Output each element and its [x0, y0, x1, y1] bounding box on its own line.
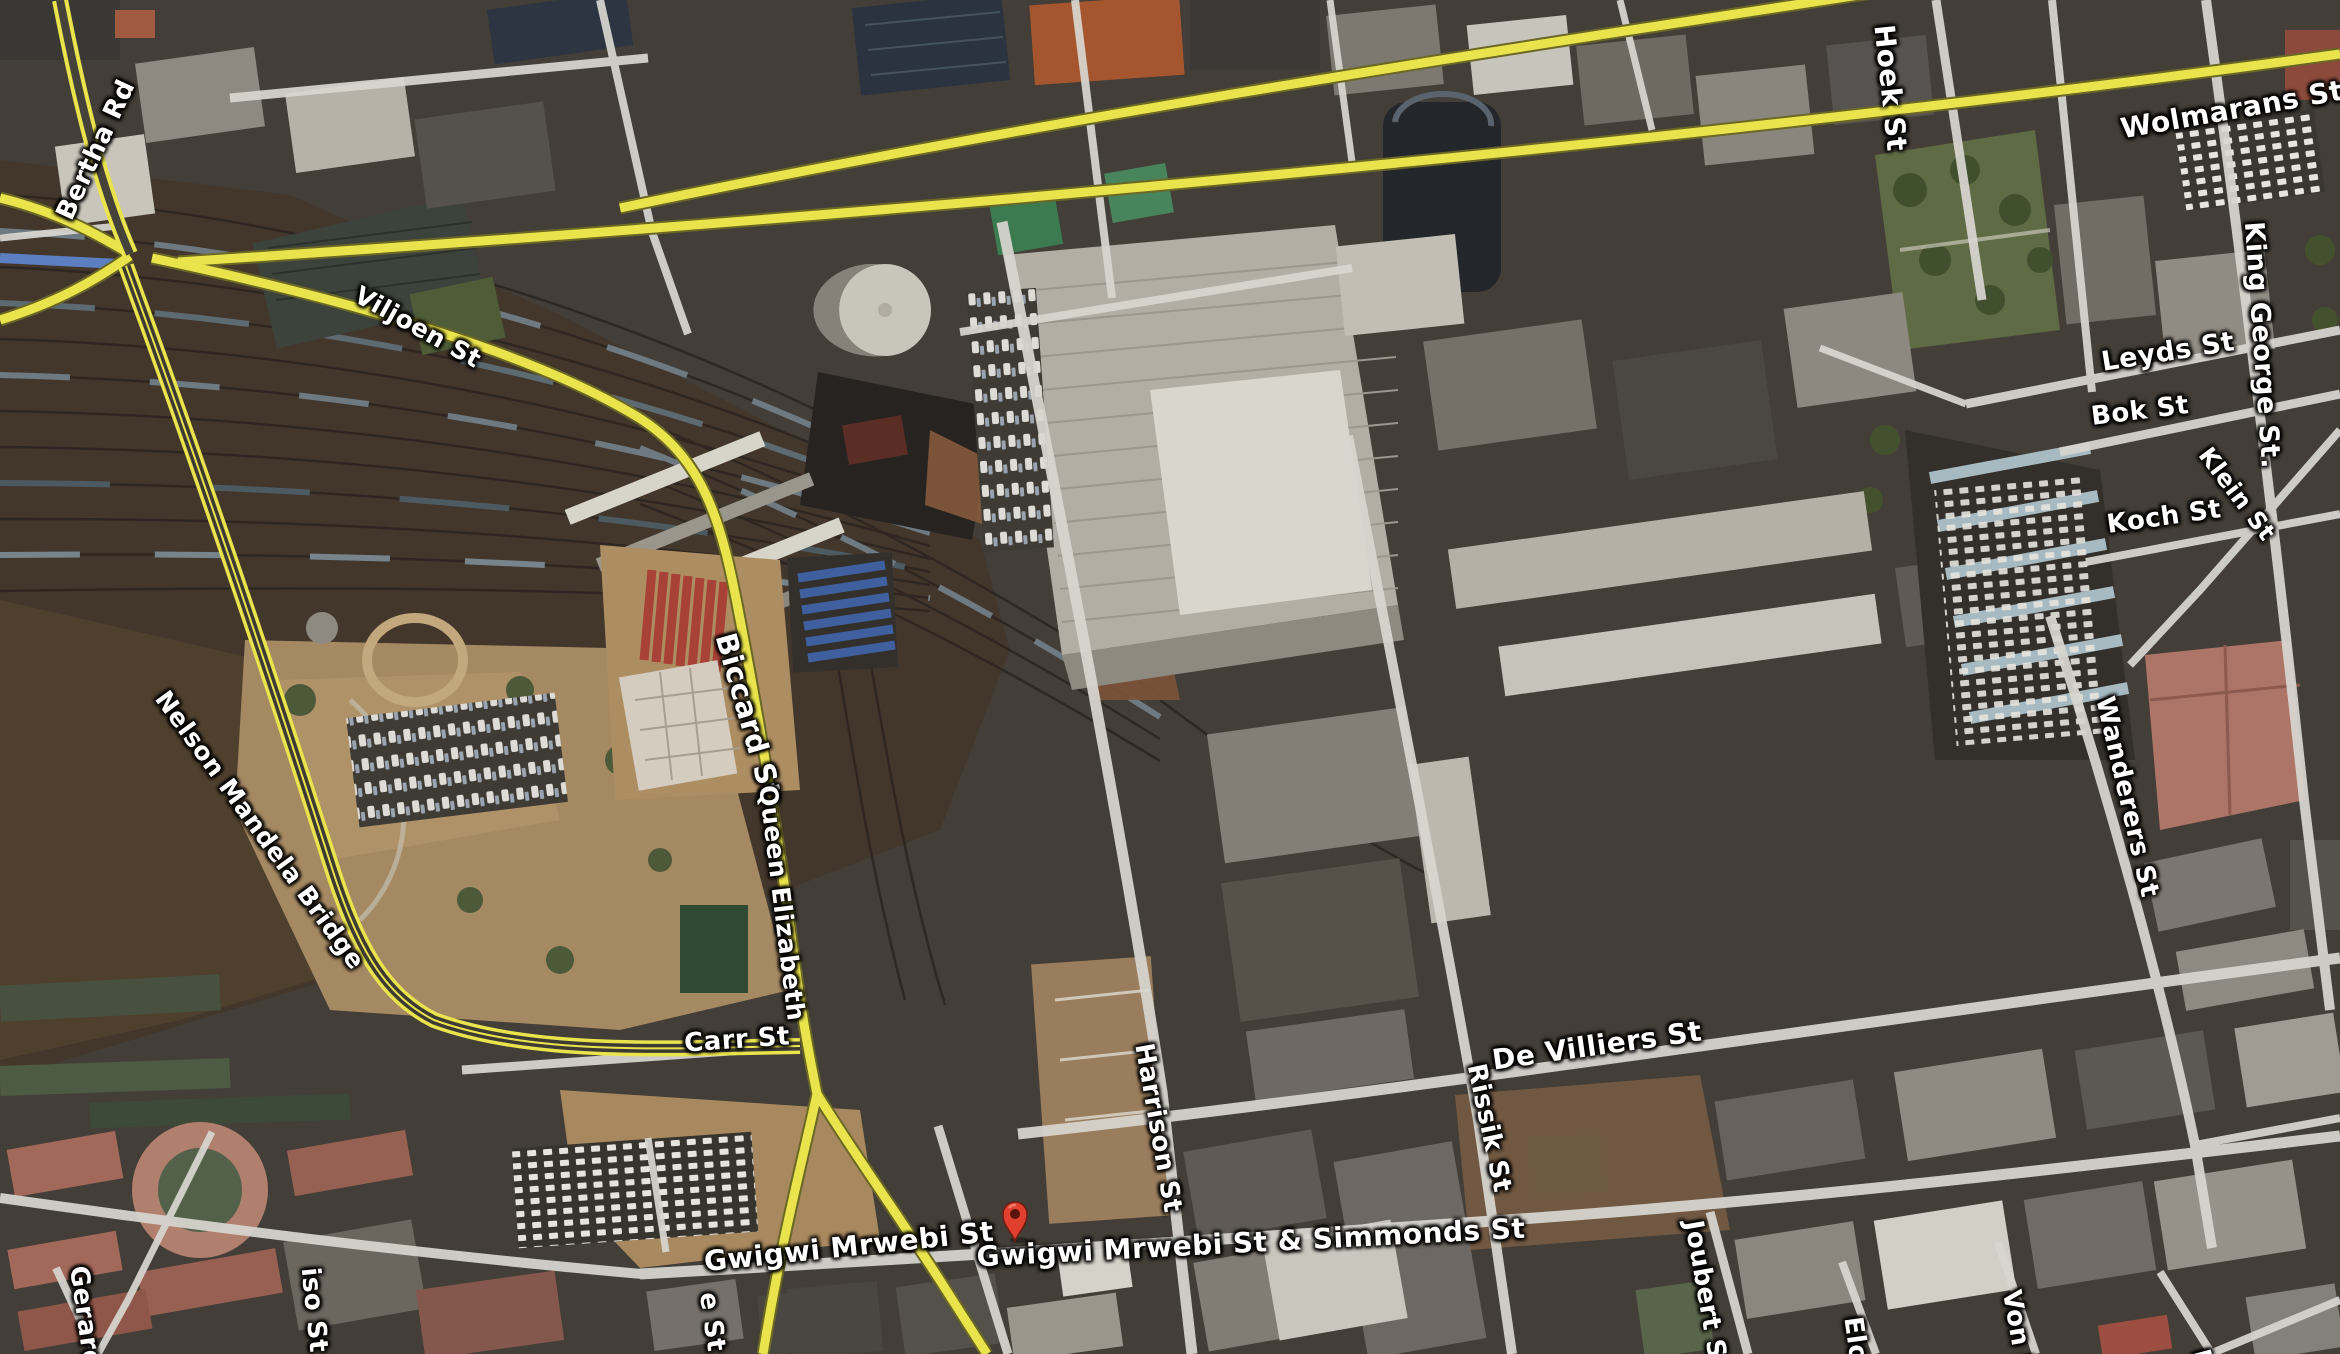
- street-label-carr-st: Carr St: [683, 1023, 791, 1056]
- street-label-kruis-st: Kruis St: [2187, 1347, 2243, 1354]
- street-label-partial-e-st: e St: [695, 1291, 729, 1354]
- street-label-nelson-mandela-bridge: Nelson Mandela Bridge: [151, 686, 369, 973]
- street-label-viljoen-st: Viljoen St: [351, 282, 486, 372]
- map-pin[interactable]: [998, 1199, 1032, 1243]
- street-label-gerard-st: Gerard St: [65, 1264, 111, 1354]
- street-label-king-george-st: King George St.: [2240, 221, 2284, 470]
- street-label-de-villiers-st: De Villiers St: [1490, 1017, 1703, 1074]
- street-label-hoek-st: Hoek St: [1869, 23, 1910, 152]
- street-label-bok-st: Bok St: [2090, 392, 2191, 430]
- street-label-queen-elizabeth: Queen Elizabeth: [755, 784, 809, 1022]
- pin-dot: [1010, 1209, 1020, 1219]
- street-label-biccard-st: Biccard St: [711, 630, 786, 802]
- street-label-partial-iso-st: iso St: [297, 1266, 332, 1354]
- street-label-leyds-st: Leyds St: [2100, 328, 2237, 376]
- marker-label: Gwigwi Mrwebi St & Simmonds St: [976, 1215, 1526, 1272]
- street-label-harrison-st: Harrison St: [1130, 1041, 1185, 1214]
- street-label-gwigwi-mrwebi-st: Gwigwi Mrwebi St: [703, 1218, 996, 1276]
- street-label-eloff-st: Eloff St: [1839, 1315, 1880, 1354]
- street-label-bertha-rd: Bertha Rd: [52, 76, 139, 224]
- street-label-wolmarans-st: Wolmarans St: [2119, 77, 2340, 144]
- street-label-von-brandis-st: Von Brandis St: [1998, 1288, 2062, 1354]
- pin-body: [1003, 1202, 1027, 1241]
- street-label-wanderers-st: Wanderers St: [2091, 694, 2162, 900]
- street-labels-layer: Bertha Rd Viljoen St Hoek St Wolmarans S…: [0, 0, 2340, 1354]
- satellite-map: Bertha Rd Viljoen St Hoek St Wolmarans S…: [0, 0, 2340, 1354]
- street-label-koch-st: Koch St: [2105, 496, 2223, 538]
- street-label-rissik-st: Rissik St: [1463, 1061, 1516, 1194]
- street-label-joubert-st: Joubert St: [1680, 1219, 1732, 1354]
